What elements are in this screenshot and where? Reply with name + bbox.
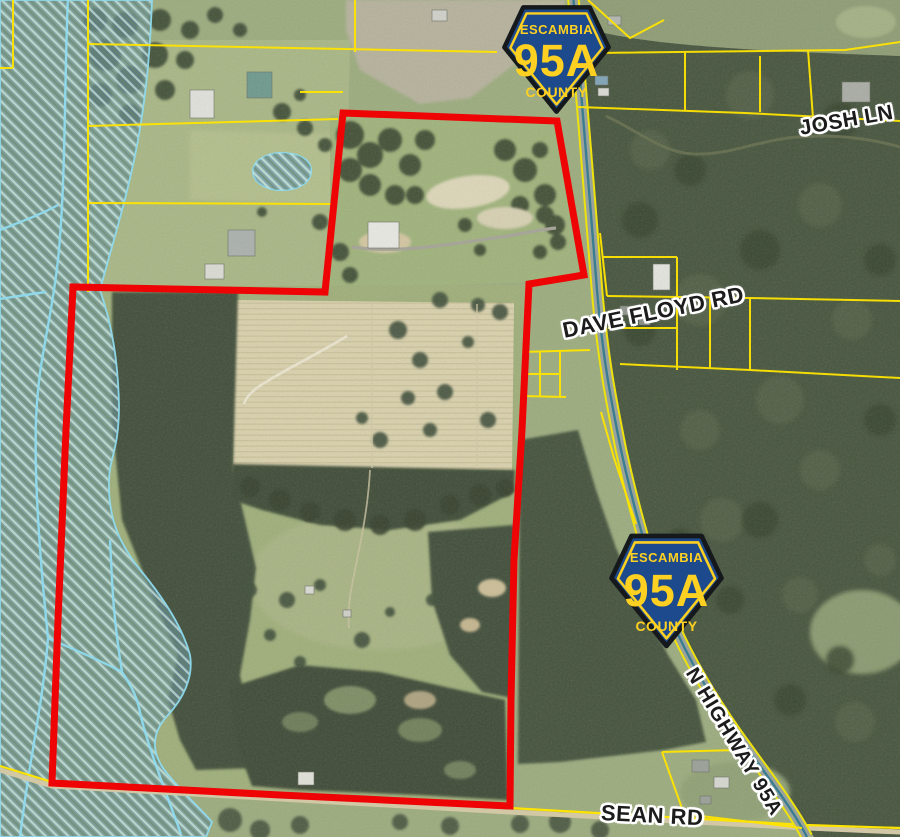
road-label-sean-rd: SEAN RD bbox=[600, 800, 704, 831]
aerial-parcel-map: JOSH LN DAVE FLOYD RD SEAN RD N HIGHWAY … bbox=[0, 0, 900, 837]
map-graphics bbox=[0, 0, 900, 837]
shield-county-name: ESCAMBIA bbox=[608, 551, 725, 564]
shield-county-name: ESCAMBIA bbox=[500, 23, 613, 36]
shield-county-word: COUNTY bbox=[608, 619, 725, 633]
escambia-95a-route-shield: ESCAMBIA 95A COUNTY bbox=[500, 4, 613, 115]
shield-county-word: COUNTY bbox=[500, 85, 613, 99]
escambia-95a-route-shield: ESCAMBIA 95A COUNTY bbox=[608, 530, 725, 652]
shield-route-number: 95A bbox=[500, 38, 613, 83]
shield-route-number: 95A bbox=[608, 568, 725, 613]
